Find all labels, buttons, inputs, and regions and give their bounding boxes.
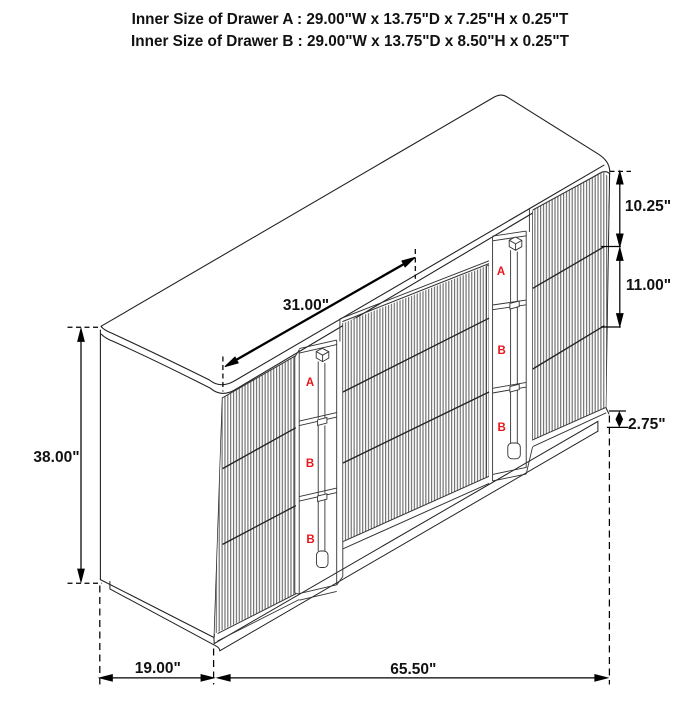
svg-text:B: B xyxy=(306,458,314,470)
svg-text:A: A xyxy=(497,266,505,278)
svg-text:B: B xyxy=(306,534,314,546)
svg-text:38.00": 38.00" xyxy=(33,449,79,466)
svg-text:65.50": 65.50" xyxy=(390,661,436,678)
svg-text:A: A xyxy=(306,377,314,389)
svg-text:Inner Size of Drawer A : 29.00: Inner Size of Drawer A : 29.00"W x 13.75… xyxy=(132,11,569,28)
svg-text:2.75": 2.75" xyxy=(628,416,666,433)
svg-text:Inner Size of Drawer B : 29.00: Inner Size of Drawer B : 29.00"W x 13.75… xyxy=(131,33,570,50)
svg-text:19.00": 19.00" xyxy=(135,660,181,677)
svg-text:11.00": 11.00" xyxy=(626,277,671,294)
svg-text:B: B xyxy=(497,422,505,434)
svg-text:31.00": 31.00" xyxy=(283,297,329,314)
svg-text:B: B xyxy=(497,345,505,357)
svg-text:10.25": 10.25" xyxy=(625,198,671,215)
